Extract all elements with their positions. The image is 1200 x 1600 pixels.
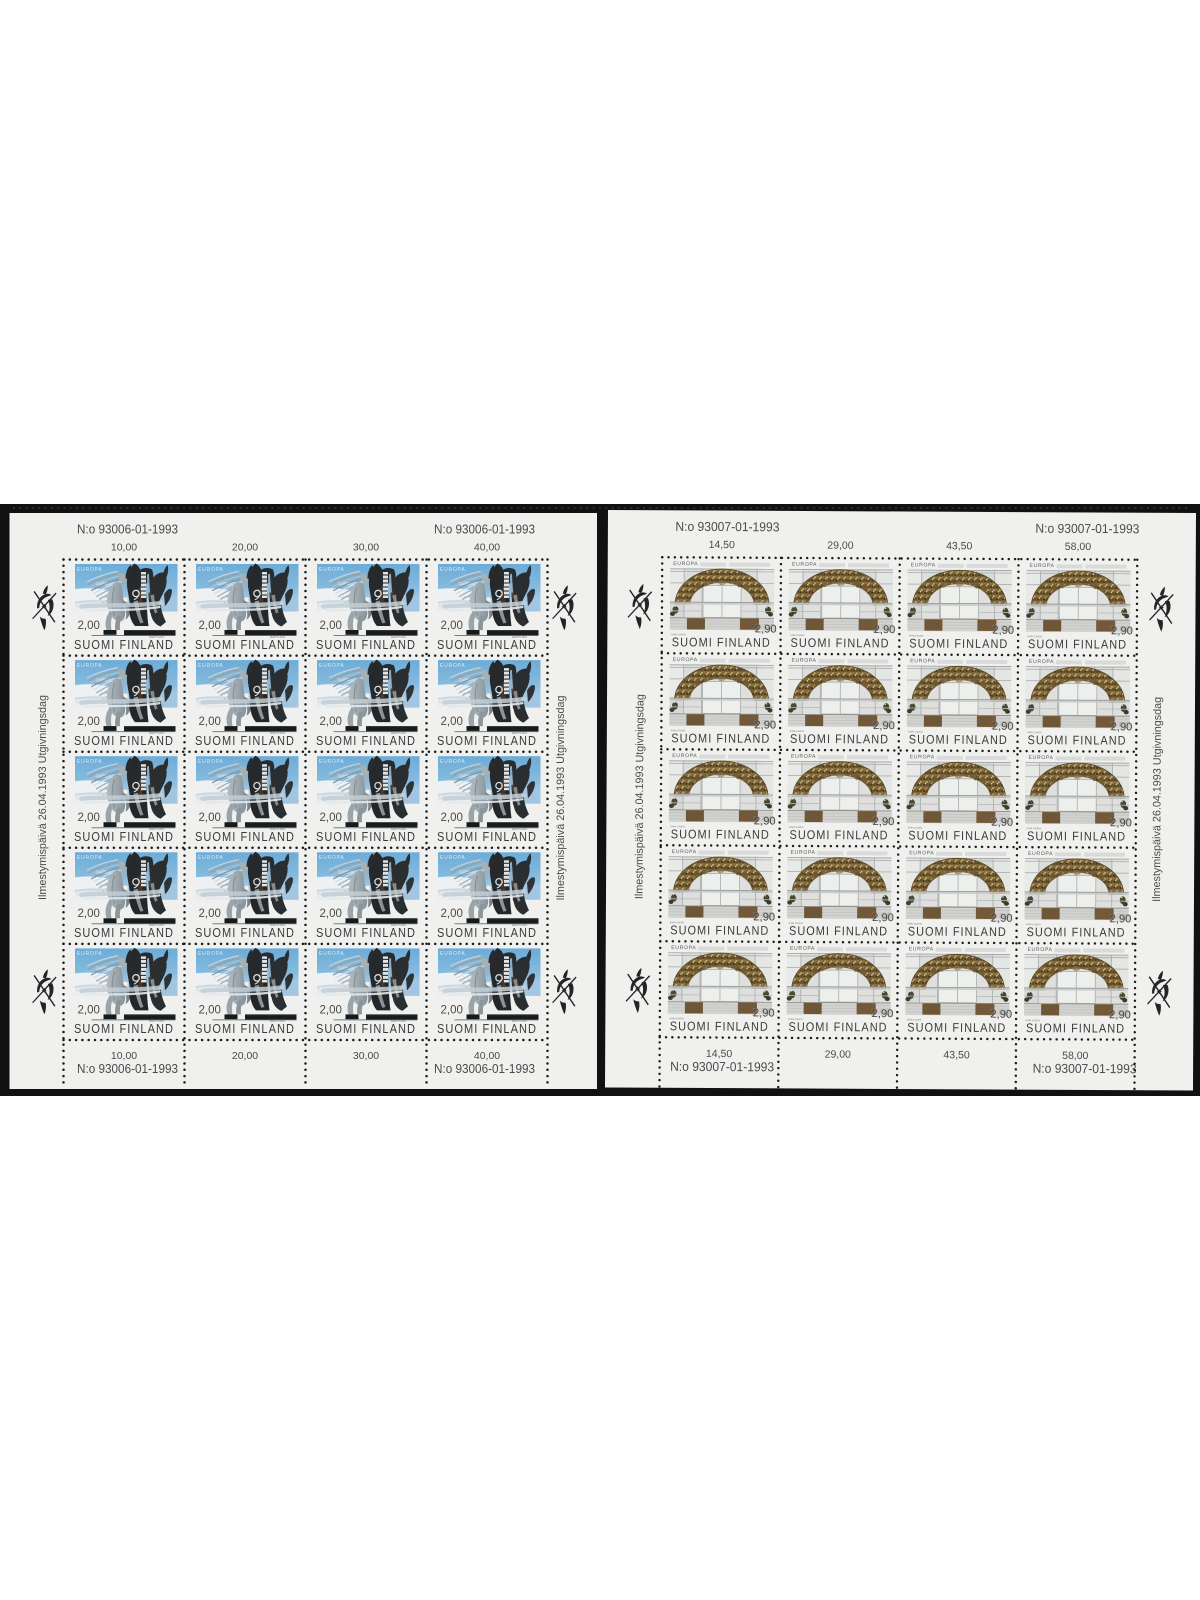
svg-text:30,00: 30,00 bbox=[353, 1050, 379, 1062]
svg-text:40,00: 40,00 bbox=[474, 542, 500, 554]
svg-text:Ilmestymispäivä 26.04.1993 Utg: Ilmestymispäivä 26.04.1993 Utgivningsdag bbox=[633, 694, 646, 899]
svg-text:N:o 93007-01-1993: N:o 93007-01-1993 bbox=[675, 519, 779, 535]
svg-text:Ilmestymispäivä 26.04.1993 Utg: Ilmestymispäivä 26.04.1993 Utgivningsdag bbox=[37, 695, 49, 900]
svg-text:29,00: 29,00 bbox=[825, 1049, 851, 1061]
svg-text:14,50: 14,50 bbox=[709, 539, 735, 551]
svg-text:58,00: 58,00 bbox=[1065, 541, 1091, 553]
svg-text:30,00: 30,00 bbox=[353, 542, 379, 554]
svg-text:10,00: 10,00 bbox=[111, 542, 137, 554]
svg-text:29,00: 29,00 bbox=[827, 540, 853, 552]
svg-text:Ilmestymispäivä 26.04.1993 Utg: Ilmestymispäivä 26.04.1993 Utgivningsdag bbox=[1151, 697, 1164, 902]
svg-text:N:o 93006-01-1993: N:o 93006-01-1993 bbox=[77, 522, 178, 537]
svg-text:N:o 93006-01-1993: N:o 93006-01-1993 bbox=[434, 1061, 535, 1076]
svg-text:43,50: 43,50 bbox=[946, 540, 972, 552]
svg-text:N:o 93007-01-1993: N:o 93007-01-1993 bbox=[1033, 1061, 1137, 1077]
svg-text:Ilmestymispäivä 26.04.1993 Utg: Ilmestymispäivä 26.04.1993 Utgivningsdag bbox=[555, 696, 567, 901]
svg-text:20,00: 20,00 bbox=[232, 542, 258, 554]
svg-text:N:o 93006-01-1993: N:o 93006-01-1993 bbox=[434, 522, 535, 537]
svg-text:N:o 93007-01-1993: N:o 93007-01-1993 bbox=[670, 1059, 774, 1075]
svg-text:N:o 93007-01-1993: N:o 93007-01-1993 bbox=[1035, 521, 1139, 537]
svg-text:20,00: 20,00 bbox=[232, 1050, 258, 1062]
svg-text:43,50: 43,50 bbox=[943, 1049, 969, 1061]
svg-text:N:o 93006-01-1993: N:o 93006-01-1993 bbox=[77, 1061, 178, 1076]
